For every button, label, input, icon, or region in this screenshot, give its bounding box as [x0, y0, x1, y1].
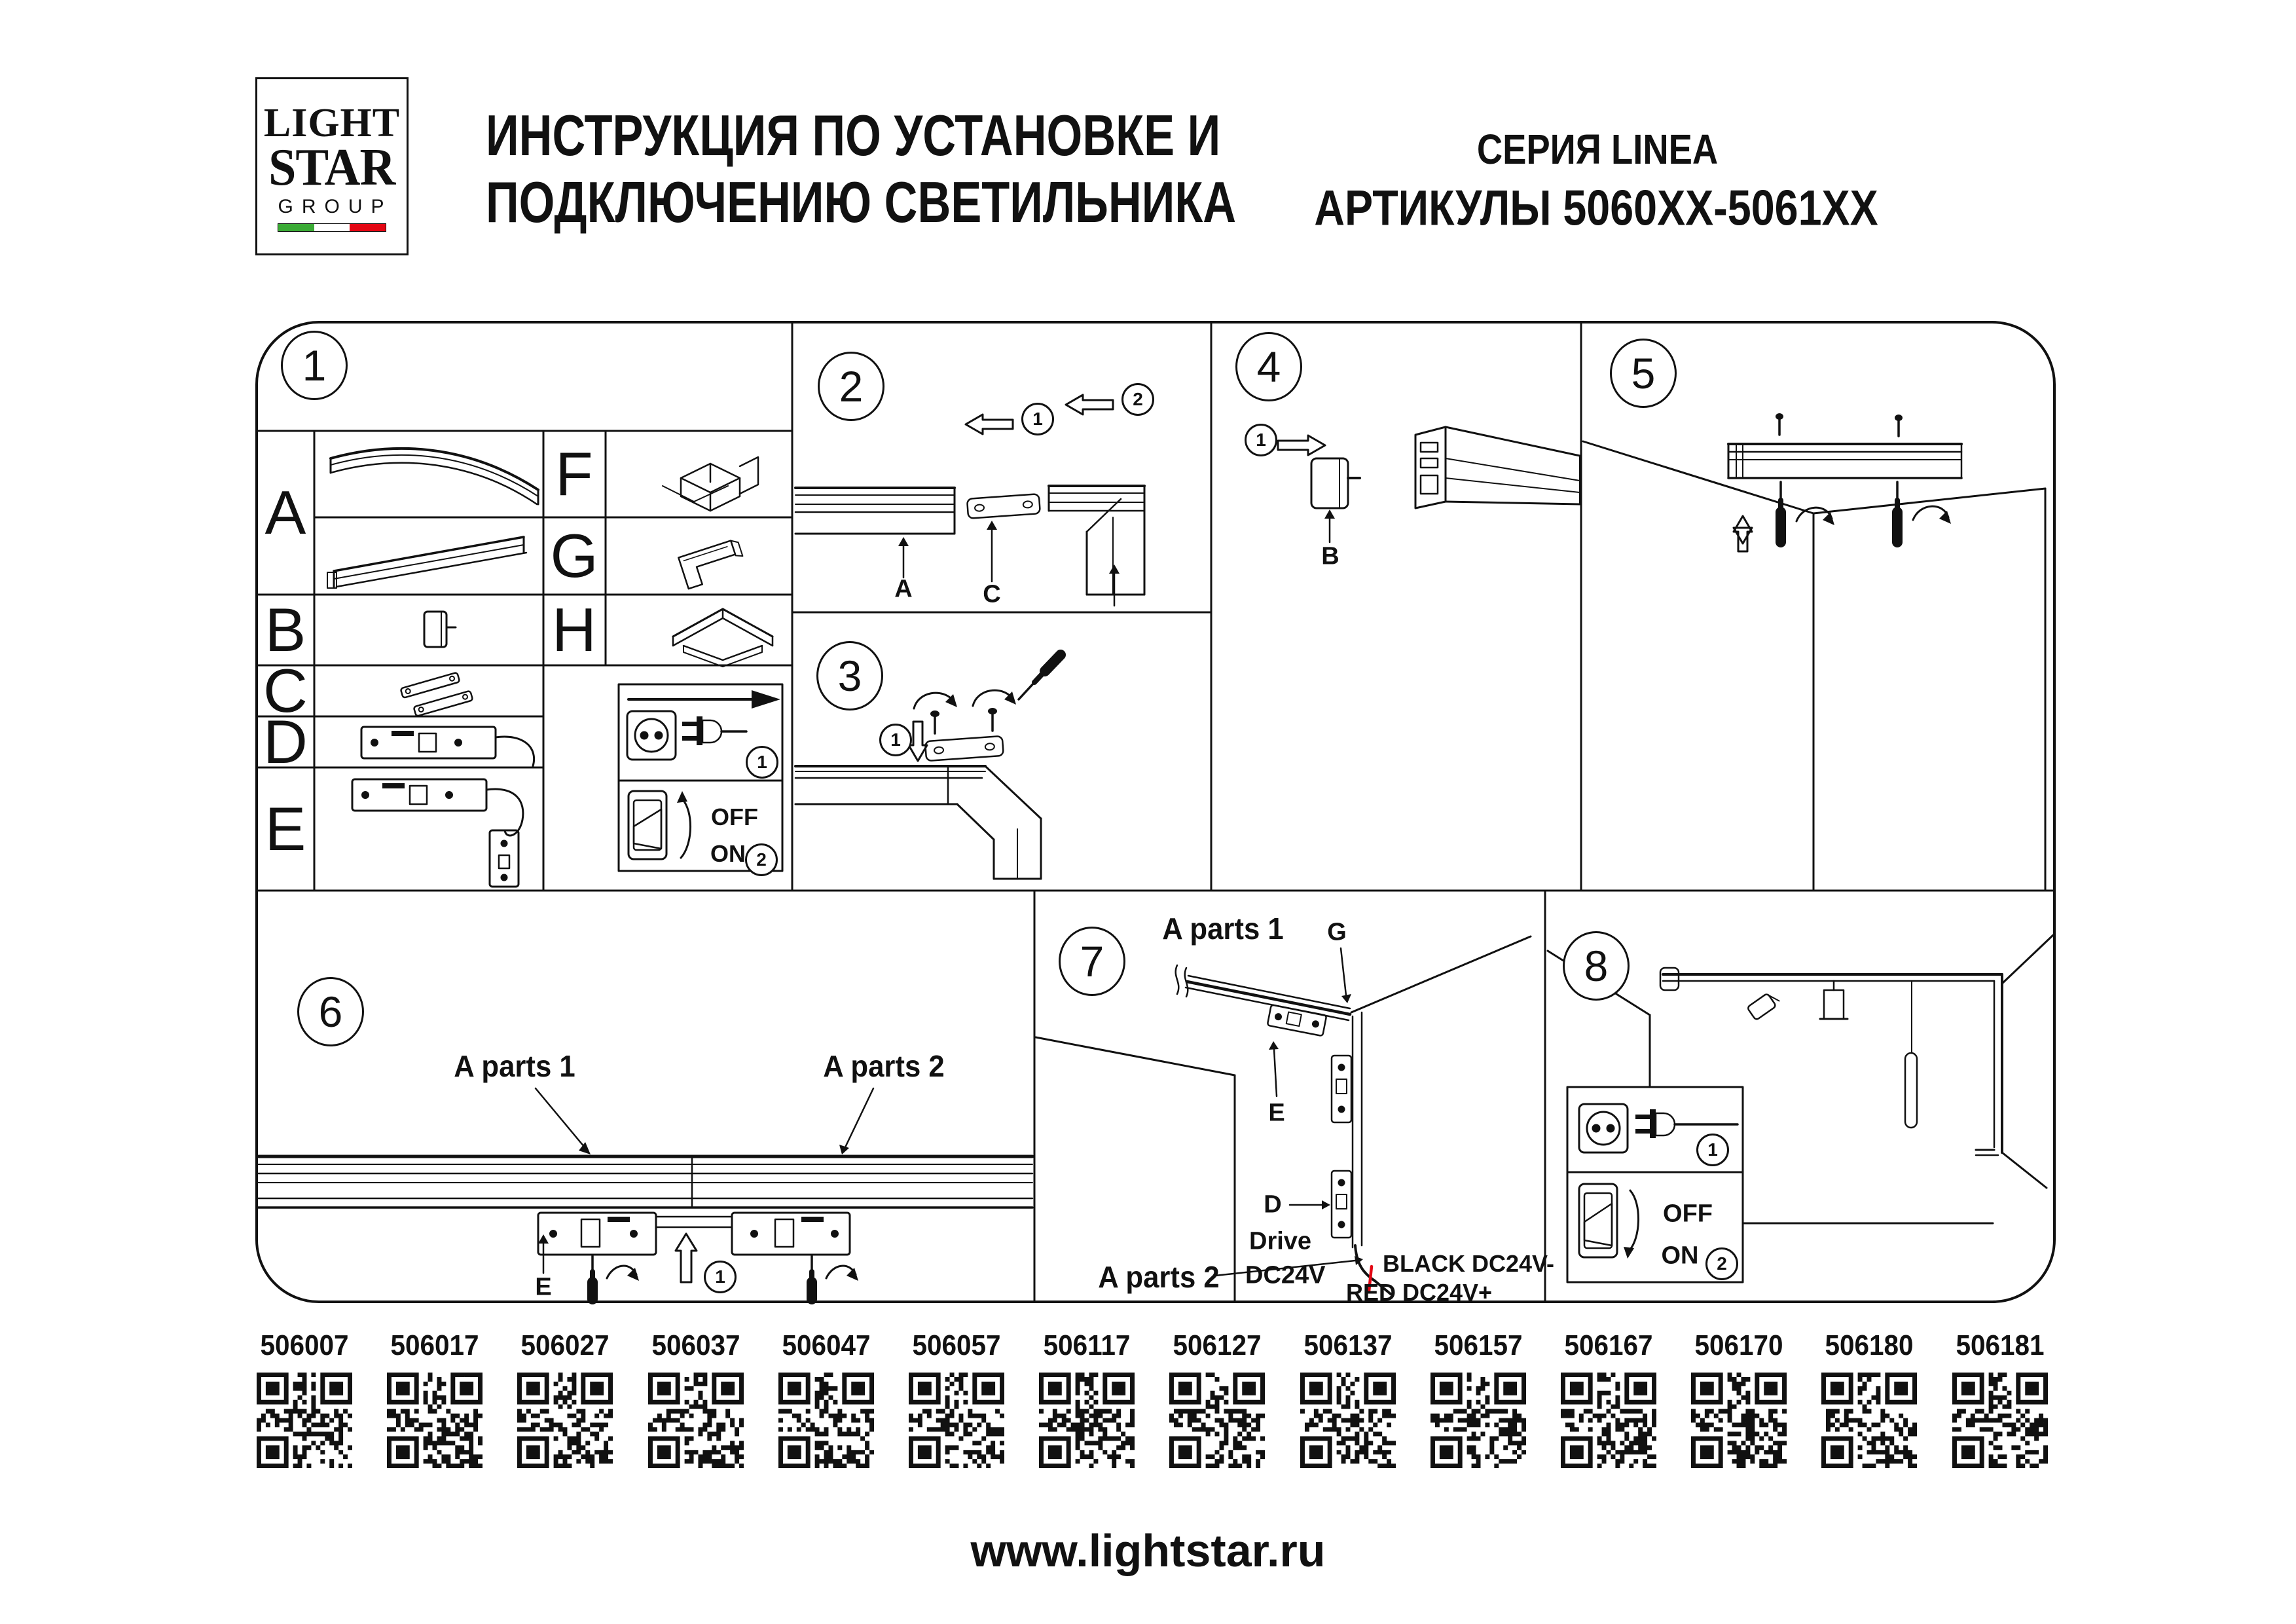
flag-green: [278, 224, 314, 231]
part-label-f: F: [555, 439, 592, 509]
track-profile: [1415, 427, 1580, 508]
panel1-number: 1: [281, 331, 348, 400]
panel7-a-parts1-label: A parts 1: [1162, 911, 1283, 946]
qr-code: [1169, 1373, 1265, 1468]
panel7-label-g: G: [1327, 919, 1347, 947]
qr-article-number: 506037: [651, 1329, 741, 1362]
part-e-corner-driver-icon: [352, 779, 523, 887]
qr-article-number: 506027: [520, 1329, 610, 1362]
panel8-step1-badge: 1: [1696, 1134, 1729, 1166]
qr-code: [909, 1373, 1004, 1468]
panel7-label-d: D: [1264, 1191, 1281, 1219]
linear-connector-e: [538, 1213, 850, 1255]
italian-flag-icon: [278, 223, 386, 232]
step1-up-arrow-icon: [676, 1234, 697, 1282]
socket-icon: [627, 711, 676, 760]
qr-item: 506157: [1429, 1329, 1527, 1468]
panel6-a-parts1-label: A parts 1: [454, 1048, 575, 1084]
panel1-step2-badge: 2: [745, 843, 778, 876]
panel3-step1-badge: 1: [879, 724, 912, 756]
qr-code: [1039, 1373, 1135, 1468]
part-label-g: G: [550, 521, 598, 591]
step1-arrow-icon: [1278, 435, 1325, 455]
qr-code: [387, 1373, 483, 1468]
part-label-b: B: [265, 595, 306, 665]
step1-arrow-icon: [966, 415, 1013, 434]
part-h-corner-cover-icon: [673, 609, 773, 667]
screwdriver-icon: [592, 1256, 812, 1299]
pendant-luminaire-icon: [1905, 981, 1917, 1128]
part-b-end-cap-icon: [424, 612, 456, 647]
panel7-wire-black-label: BLACK DC24V-: [1383, 1250, 1554, 1278]
qr-code: [648, 1373, 744, 1468]
driver-d: [1332, 1171, 1351, 1238]
panel2-drawing: [795, 395, 1144, 606]
connector-plate-c: [925, 736, 1004, 761]
website-link: www.lightstar.ru: [0, 1524, 2296, 1577]
qr-code: [1821, 1373, 1917, 1468]
panel7-number: 7: [1059, 927, 1125, 996]
panel6-a-parts2-label: A parts 2: [823, 1048, 944, 1084]
panel8-step2-badge: 2: [1705, 1247, 1738, 1280]
flag-red: [350, 224, 386, 231]
panel1-on-label: ON: [710, 840, 746, 868]
panel5-number: 5: [1610, 339, 1677, 408]
panel6-label-e: E: [535, 1274, 551, 1302]
panel5-drawing: [1583, 413, 2045, 889]
qr-article-number: 506181: [1955, 1329, 2045, 1362]
spot-luminaire-icon: [1747, 990, 1780, 1020]
panel2-label-a: A: [894, 576, 912, 604]
qr-article-number: 506017: [390, 1329, 480, 1362]
panel6-drawing: [257, 1088, 1032, 1299]
panel7-drive-line1: Drive: [1249, 1228, 1311, 1256]
qr-item: 506170: [1690, 1329, 1788, 1468]
panel4-label-b: B: [1321, 543, 1339, 571]
panel8-number: 8: [1563, 931, 1630, 1001]
qr-row: 506007 506017 506027 506037 506047 50605…: [0, 1329, 2296, 1545]
qr-code: [517, 1373, 613, 1468]
plug-icon: [629, 690, 780, 745]
panel7-drive-line2: DC24V: [1245, 1262, 1326, 1290]
panel2-step1-badge: 1: [1021, 403, 1054, 435]
screw-icon: [1776, 413, 1903, 436]
qr-article-number: 506047: [781, 1329, 871, 1362]
qr-article-number: 506170: [1694, 1329, 1784, 1362]
part-label-e: E: [265, 794, 306, 864]
part-a-straight-track-icon: [327, 537, 526, 588]
qr-article-number: 506180: [1824, 1329, 1914, 1362]
panel1-off-label: OFF: [711, 803, 758, 831]
panel2-label-c: C: [983, 581, 1000, 609]
panel2-step2-badge: 2: [1121, 383, 1154, 416]
qr-item: 506127: [1168, 1329, 1266, 1468]
qr-code: [1561, 1373, 1656, 1468]
qr-article-number: 506117: [1042, 1329, 1132, 1362]
panel4-step1-badge: 1: [1245, 424, 1277, 456]
panel8-drawing: [1548, 935, 2053, 1282]
qr-item: 506027: [516, 1329, 614, 1468]
qr-article-number: 506057: [911, 1329, 1002, 1362]
connector-e-wall: [1332, 1056, 1351, 1122]
panel7-label-e: E: [1268, 1099, 1285, 1128]
switch-icon: [629, 791, 691, 859]
qr-code: [1952, 1373, 2048, 1468]
panel2-number: 2: [818, 352, 884, 421]
panel4-number: 4: [1235, 332, 1302, 401]
lightstar-logo: LIGHT STAR GROUP: [255, 77, 409, 255]
doc-title-line1: ИНСТРУКЦИЯ ПО УСТАНОВКЕ И: [486, 102, 1220, 169]
qr-item: 506057: [907, 1329, 1006, 1468]
connector-plate-c: [967, 494, 1040, 519]
flag-white: [314, 224, 350, 231]
qr-article-number: 506167: [1563, 1329, 1654, 1362]
qr-article-number: 506137: [1303, 1329, 1393, 1362]
panel7-wire-red-label: RED DC24V+: [1346, 1279, 1492, 1306]
part-label-a: A: [265, 477, 306, 548]
end-cap-b: [1311, 458, 1360, 508]
qr-item: 506180: [1820, 1329, 1918, 1468]
qr-item: 506017: [386, 1329, 484, 1468]
ceiling-track: [1728, 444, 1961, 478]
panel4-drawing: [1278, 427, 1580, 542]
qr-code: [1430, 1373, 1526, 1468]
panel1-step1-badge: 1: [746, 746, 778, 779]
cylinder-luminaire-icon: [1820, 981, 1848, 1019]
part-g-l-connector-icon: [678, 539, 747, 589]
qr-item: 506047: [777, 1329, 875, 1468]
logo-star: STAR: [268, 143, 395, 192]
screwdriver-icon: [1019, 655, 1061, 699]
part-a-curved-track-icon: [331, 449, 538, 504]
screw-icon: [930, 708, 997, 733]
step2-arrow-icon: [1066, 395, 1113, 415]
part-label-d: D: [263, 707, 308, 777]
series-label: СЕРИЯ LINEA: [1477, 125, 1718, 174]
logo-group: GROUP: [278, 196, 392, 218]
instruction-sheet: LIGHT STAR GROUP ИНСТРУКЦИЯ ПО УСТАНОВКЕ…: [0, 0, 2296, 1624]
qr-item: 506137: [1299, 1329, 1397, 1468]
part-f-corner-connector-icon: [663, 457, 758, 511]
joined-tracks: [257, 1156, 1032, 1208]
qr-article-number: 506127: [1172, 1329, 1262, 1362]
panel3-number: 3: [816, 641, 883, 710]
qr-item: 506037: [647, 1329, 745, 1468]
qr-code: [1300, 1373, 1396, 1468]
qr-code: [257, 1373, 352, 1468]
qr-article-number: 506007: [259, 1329, 350, 1362]
connector-e-ceiling: [1267, 1005, 1327, 1036]
qr-item: 506117: [1038, 1329, 1136, 1468]
panel6-step1-badge: 1: [704, 1261, 737, 1293]
qr-item: 506181: [1951, 1329, 2049, 1468]
part-label-h: H: [552, 595, 596, 665]
panel8-on-label: ON: [1662, 1242, 1699, 1270]
panel8-off-label: OFF: [1663, 1200, 1713, 1228]
qr-code: [778, 1373, 874, 1468]
qr-item: 506167: [1559, 1329, 1658, 1468]
qr-article-number: 506157: [1433, 1329, 1523, 1362]
panel6-number: 6: [297, 977, 364, 1046]
logo-light: LIGHT: [264, 103, 400, 143]
doc-title-line2: ПОДКЛЮЧЕНИЮ СВЕТИЛЬНИКА: [486, 169, 1236, 236]
part-d-driver-icon: [361, 727, 534, 766]
part-c-connector-plates-icon: [401, 673, 473, 716]
articles-label: АРТИКУЛЫ 5060XX-5061XX: [1314, 180, 1878, 237]
qr-code: [1691, 1373, 1787, 1468]
panel7-a-parts2-label: A parts 2: [1098, 1259, 1219, 1295]
screwdriver-icon: [1781, 482, 1897, 542]
qr-item: 506007: [255, 1329, 354, 1468]
